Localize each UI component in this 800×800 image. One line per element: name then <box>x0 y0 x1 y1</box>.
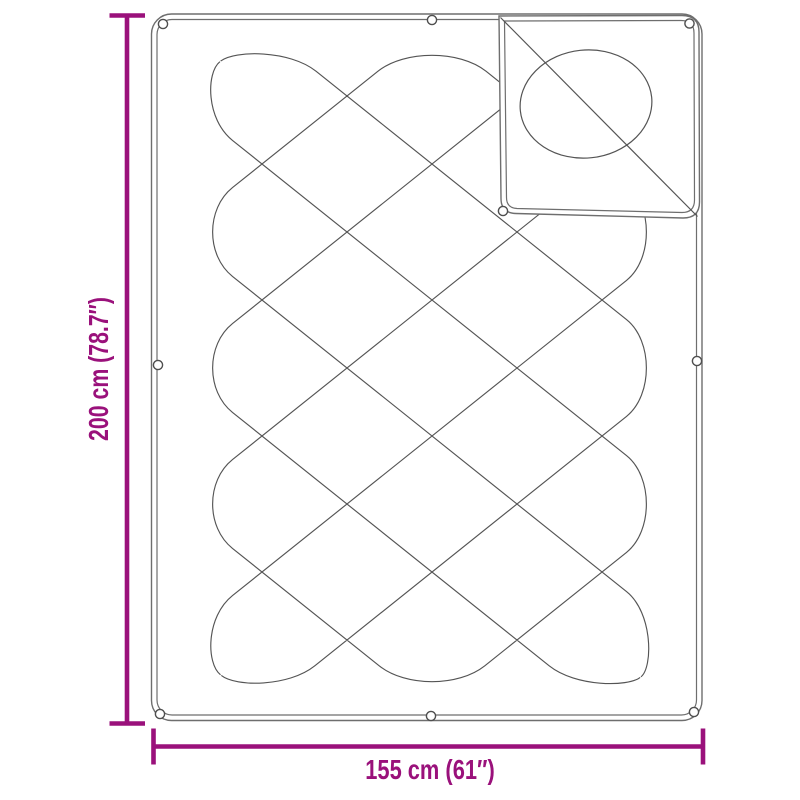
eyelet-snap <box>426 711 435 720</box>
width-dimension-label: 155 cm (61″) <box>365 754 494 786</box>
eyelet-snap <box>692 356 701 365</box>
eyelet-snap <box>153 360 162 369</box>
blanket-dimension-diagram: 200 cm (78.7″) 155 cm (61″) <box>0 0 800 800</box>
eyelet-snap <box>689 707 698 716</box>
diagram-canvas <box>0 0 800 800</box>
eyelet-snap <box>427 15 436 24</box>
folded-corner-flap <box>498 16 699 219</box>
eyelet-snap <box>498 206 507 215</box>
eyelet-snap <box>158 19 167 28</box>
eyelet-snap <box>685 19 694 28</box>
eyelet-snap <box>155 709 164 718</box>
height-dimension-label: 200 cm (78.7″) <box>83 297 115 441</box>
